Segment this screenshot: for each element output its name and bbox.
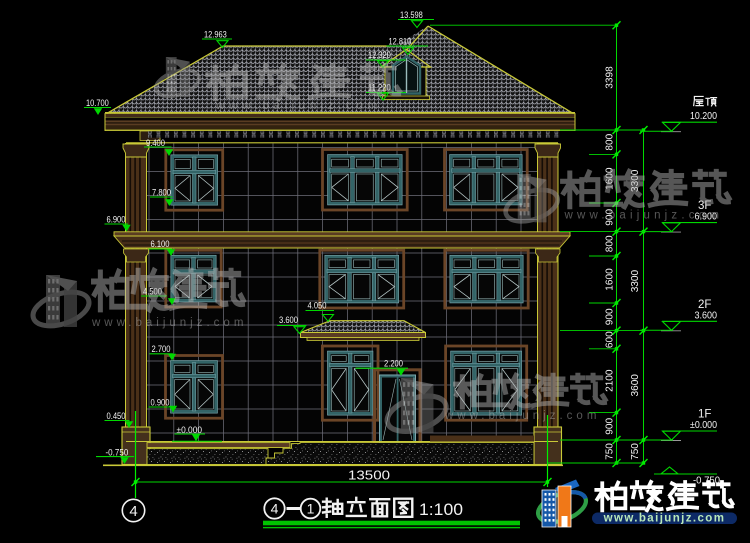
svg-text:900: 900	[605, 308, 616, 325]
svg-text:3.600: 3.600	[279, 315, 298, 326]
svg-text:750: 750	[630, 443, 641, 460]
svg-text:4: 4	[271, 501, 279, 517]
svg-text:www.baijunjz.com: www.baijunjz.com	[603, 513, 726, 525]
svg-text:1: 1	[307, 501, 315, 517]
svg-text:750: 750	[605, 443, 616, 460]
svg-text:13500: 13500	[348, 469, 390, 483]
svg-text:2100: 2100	[605, 369, 616, 392]
svg-text:1600: 1600	[605, 268, 616, 291]
svg-text:3.600: 3.600	[695, 309, 718, 321]
svg-text:6.100: 6.100	[151, 239, 170, 250]
svg-text:800: 800	[605, 235, 616, 252]
svg-text:1:100: 1:100	[419, 501, 463, 519]
svg-text:10.200: 10.200	[690, 110, 717, 122]
svg-text:3398: 3398	[605, 66, 616, 89]
svg-text:www.baijunjz.com: www.baijunjz.com	[444, 410, 600, 422]
svg-text:800: 800	[605, 133, 616, 150]
svg-text:2.200: 2.200	[384, 358, 403, 369]
svg-text:3600: 3600	[630, 374, 641, 397]
svg-text:600: 600	[605, 331, 616, 348]
svg-text:www.baijunjz.com: www.baijunjz.com	[564, 210, 724, 222]
svg-text:www.baijunjz.com: www.baijunjz.com	[215, 98, 382, 112]
svg-text:3300: 3300	[630, 270, 641, 293]
svg-text:www.baijunjz.com: www.baijunjz.com	[91, 317, 247, 329]
svg-text:12.320: 12.320	[368, 50, 391, 61]
svg-text:900: 900	[605, 418, 616, 435]
svg-text:4: 4	[129, 503, 137, 520]
svg-text:±0.000: ±0.000	[690, 419, 717, 431]
